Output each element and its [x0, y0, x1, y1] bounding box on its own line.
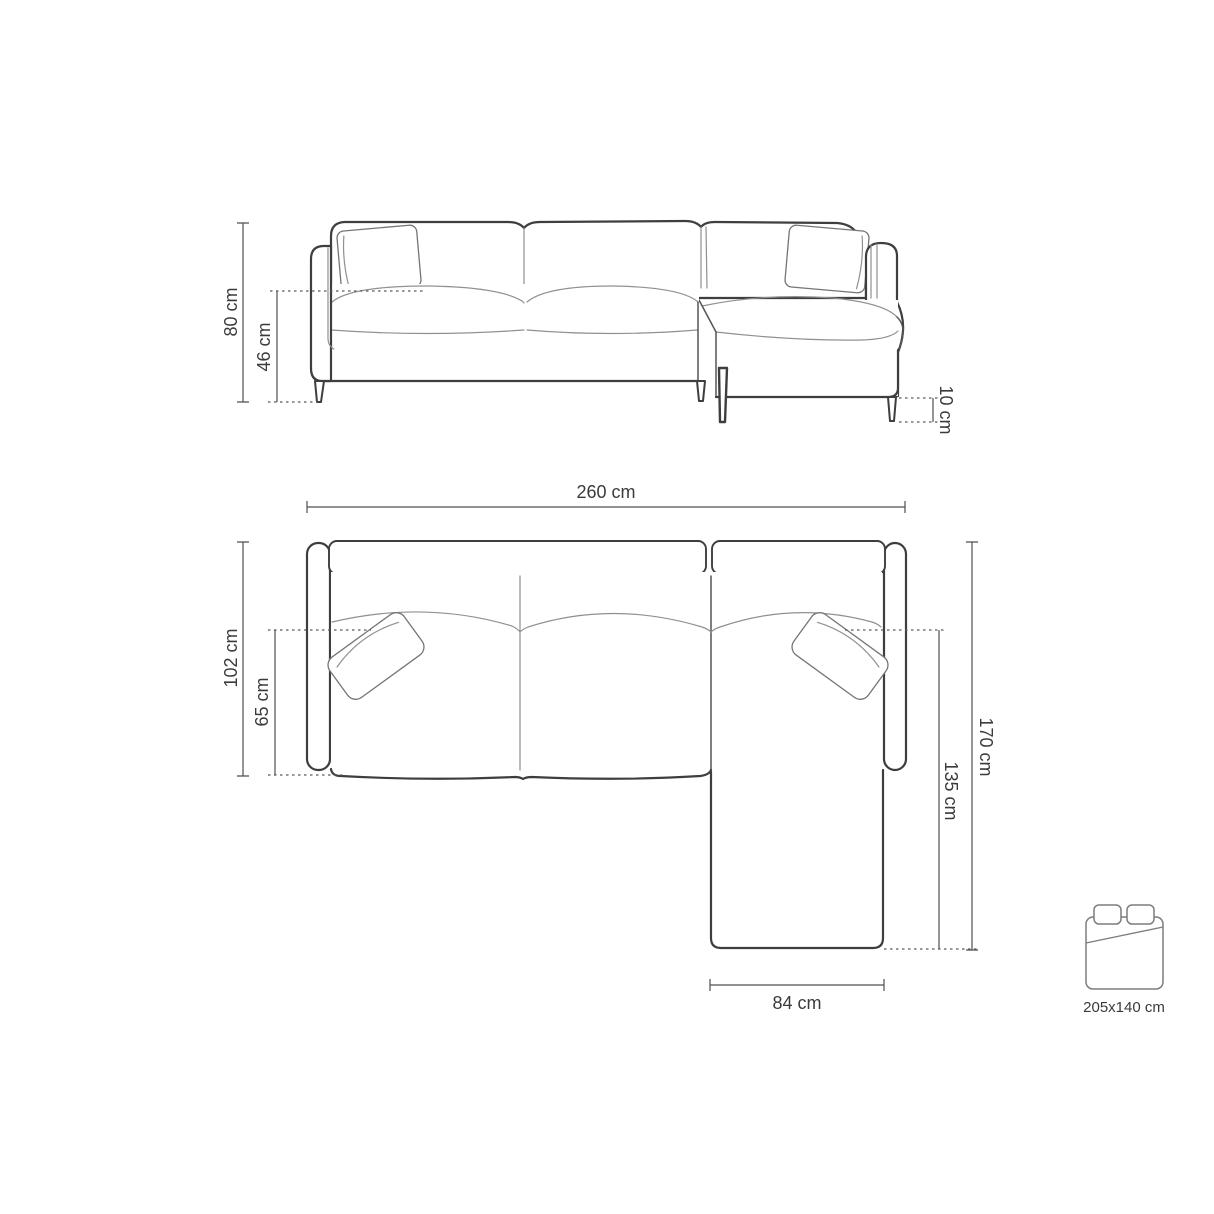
dim-label-chaise-inner-length: 135 cm — [941, 761, 961, 820]
front-view-drawing: 80 cm 46 cm 10 cm — [221, 221, 956, 435]
plan-backrest-right — [712, 541, 885, 574]
diagram-svg: 80 cm 46 cm 10 cm — [0, 0, 1214, 1214]
dimension-overall-depth: 102 cm — [221, 542, 249, 776]
dim-label-seat-height: 46 cm — [254, 322, 274, 371]
dim-label-chaise-width: 84 cm — [772, 993, 821, 1013]
dim-label-overall-height: 80 cm — [221, 287, 241, 336]
sofa-dimension-diagram: 80 cm 46 cm 10 cm — [0, 0, 1214, 1214]
front-leg-1 — [315, 381, 324, 402]
dim-label-overall-depth: 102 cm — [221, 628, 241, 687]
dimension-overall-width: 260 cm — [307, 482, 905, 513]
dimension-overall-height: 80 cm — [221, 223, 249, 402]
dimension-chaise-width: 84 cm — [710, 979, 884, 1013]
front-left-pillow — [336, 225, 421, 294]
dimension-chaise-outer-length: 170 cm — [966, 542, 996, 950]
plan-backrest-left — [329, 541, 706, 574]
double-bed-top-view-icon — [1086, 905, 1163, 989]
sleeping-area-size-label: 205x140 cm — [1083, 999, 1165, 1016]
plan-right-armrest — [884, 543, 906, 770]
dim-label-leg-height: 10 cm — [936, 385, 956, 434]
plan-left-armrest — [307, 543, 330, 770]
dim-label-seat-depth: 65 cm — [252, 677, 272, 726]
front-right-pillow — [784, 225, 869, 294]
front-leg-3 — [719, 368, 727, 422]
front-leg-4 — [888, 397, 896, 421]
dim-label-chaise-outer-length: 170 cm — [976, 717, 996, 776]
top-view-drawing: 260 cm 102 cm 65 cm 170 cm 135 cm 84 cm — [221, 482, 996, 1013]
front-leg-2 — [697, 381, 705, 401]
dimension-leg-height: 10 cm — [899, 385, 956, 434]
dim-label-overall-width: 260 cm — [576, 482, 635, 502]
sleeping-area: 205x140 cm — [1083, 905, 1165, 1016]
